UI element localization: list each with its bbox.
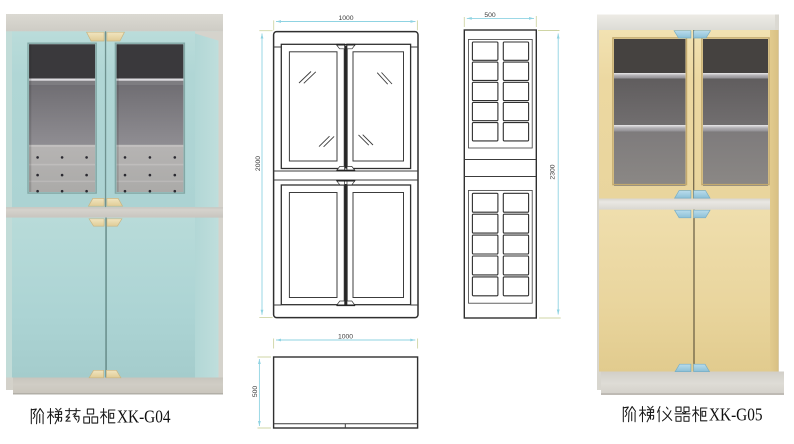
svg-text:500: 500 [252,386,259,398]
svg-text:2300: 2300 [550,164,557,179]
svg-text:XK-G05: XK-G05 [709,404,763,424]
svg-text:500: 500 [484,12,496,19]
svg-text:2000: 2000 [255,156,262,171]
svg-text:1000: 1000 [338,15,353,22]
svg-text:XK-G04: XK-G04 [117,406,171,426]
svg-text:1000: 1000 [338,333,353,340]
